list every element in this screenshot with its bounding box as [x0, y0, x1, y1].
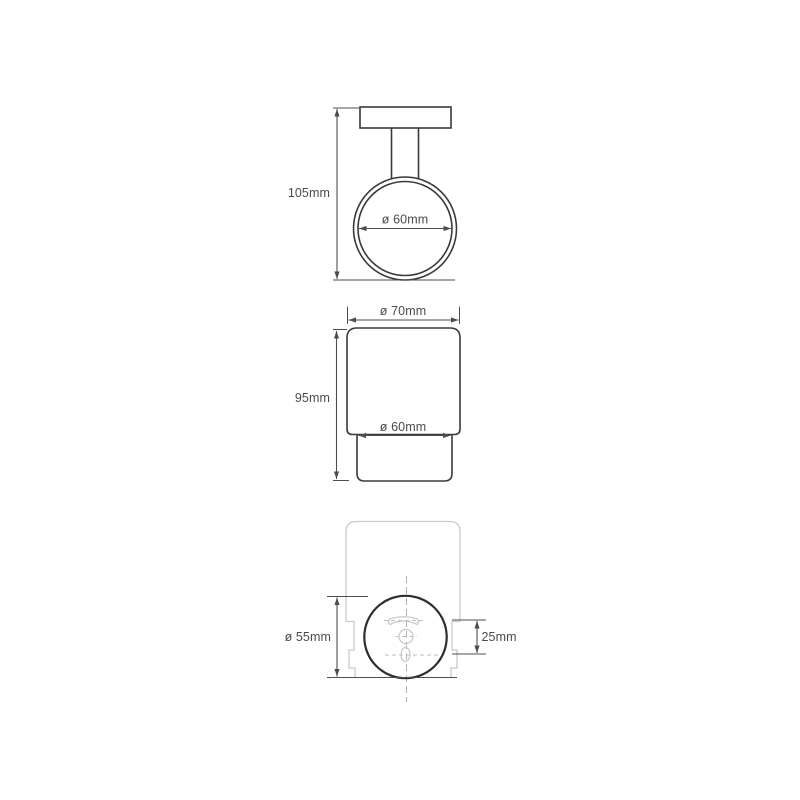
technical-drawing-canvas: 105mm ø 60mm ø 70mm 95mm ø 60mm [0, 0, 800, 800]
dim-label-height: 95mm [295, 391, 330, 405]
dimension-base-diameter-60: ø 60mm [359, 420, 451, 436]
dim-label-base-diameter: ø 60mm [380, 420, 426, 434]
dimension-ring-diameter-60: ø 60mm [359, 213, 451, 229]
dim-label-plate-diameter: ø 55mm [285, 630, 331, 644]
dim-label-hole-spacing: 25mm [482, 630, 517, 644]
tumbler-front-view: ø 70mm 95mm ø 60mm [295, 304, 460, 481]
dimension-hole-spacing-25: 25mm [452, 620, 517, 654]
tumbler-lower-body-outline [357, 435, 452, 482]
holder-stem-outline [392, 128, 419, 179]
dim-label-ring-diameter: ø 60mm [382, 213, 428, 227]
tumbler-upper-body-outline [347, 328, 460, 435]
dimension-plate-diameter-55: ø 55mm [285, 597, 457, 678]
wall-plate-outline [360, 107, 451, 128]
holder-side-view: 105mm ø 60mm [288, 107, 457, 280]
dim-label-height: 105mm [288, 186, 330, 200]
dimension-rim-diameter-70: ø 70mm [348, 304, 460, 324]
dim-label-rim-diameter: ø 70mm [380, 304, 426, 318]
dimension-height-95: 95mm [295, 330, 349, 481]
mount-top-view: ø 55mm 25mm [285, 522, 517, 703]
dimension-height-105: 105mm [288, 108, 455, 280]
tumbler-holder-dimension-drawing: 105mm ø 60mm ø 70mm 95mm ø 60mm [0, 0, 800, 800]
